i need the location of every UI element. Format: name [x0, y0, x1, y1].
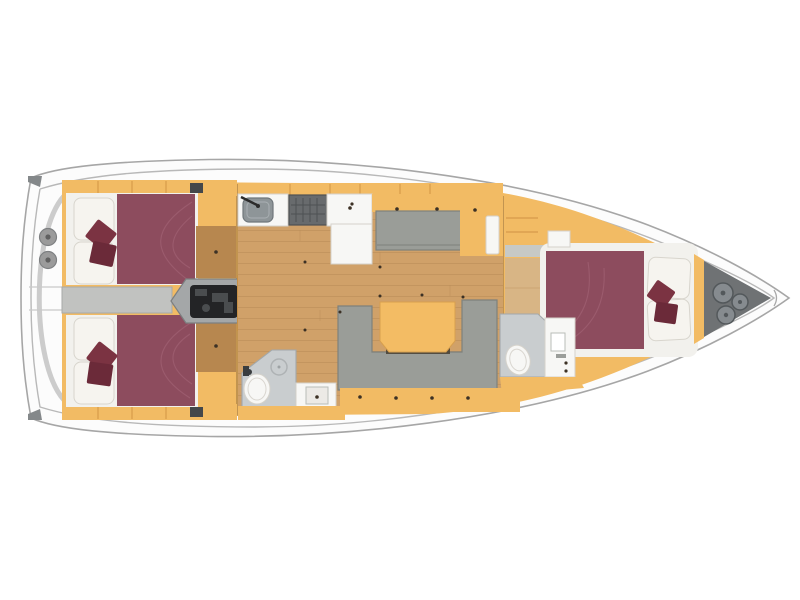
fastener-dot [430, 396, 434, 400]
fastener-dot [462, 296, 465, 299]
shelf [548, 231, 570, 247]
corridor-floor [62, 287, 172, 313]
engine-detail [195, 289, 207, 296]
fastener-dot [473, 208, 477, 212]
counter-top [327, 194, 372, 226]
fastener-dot [395, 207, 399, 211]
cabinet-door [486, 216, 499, 254]
sofa-front-cabinet [340, 388, 520, 412]
vanity-mirror [551, 333, 565, 351]
locker-knob [214, 344, 218, 348]
fastener-dot [339, 311, 342, 314]
fastener-dot [379, 266, 382, 269]
locker-hatch [190, 407, 203, 417]
fastener-dot [421, 294, 424, 297]
fastener-dot [304, 329, 307, 332]
stove [289, 195, 327, 225]
engine-detail [212, 293, 228, 302]
yacht-floor-plan [0, 0, 800, 600]
fastener-dot [379, 295, 382, 298]
throw-cushion [654, 302, 679, 325]
locker-hatch [190, 183, 203, 193]
settee [372, 194, 464, 250]
rope-coil-center [724, 313, 728, 317]
counter-extension [331, 224, 372, 264]
wardrobe [504, 203, 540, 251]
nav-cabinet [460, 194, 503, 256]
locker-knob [214, 250, 218, 254]
fastener-dot [348, 206, 352, 210]
throw-cushion [87, 361, 114, 386]
faucet-base [256, 204, 260, 208]
helm-winch-bottom-center [45, 257, 50, 262]
fastener-dot [358, 395, 362, 399]
salon-bottom-band [238, 406, 345, 420]
yacht-floor-plan-page [0, 0, 800, 600]
settee-bench [376, 211, 462, 250]
vanity-faucet [315, 395, 319, 399]
settee-back-cabinet [372, 194, 464, 212]
salon-table [380, 302, 455, 352]
vanity-knob [564, 369, 567, 372]
salon-sofa [338, 300, 520, 412]
salon [238, 183, 520, 420]
rope-coil-center [738, 300, 742, 304]
helm-winch-top-center [45, 234, 50, 239]
vanity-knob [564, 361, 567, 364]
engine-detail [224, 302, 233, 313]
fastener-dot [435, 207, 439, 211]
rope-coil-center [721, 291, 726, 296]
bath-faucet-head [246, 369, 252, 375]
shower-drain-center [278, 366, 281, 369]
counter-knob [350, 202, 353, 205]
double-bed [117, 315, 195, 406]
engine-detail [202, 304, 210, 312]
fastener-dot [304, 261, 307, 264]
fastener-dot [394, 396, 398, 400]
vanity-handle [556, 354, 566, 358]
forward-head [500, 314, 584, 395]
fastener-dot [466, 396, 470, 400]
bow-bulkhead [694, 254, 704, 344]
